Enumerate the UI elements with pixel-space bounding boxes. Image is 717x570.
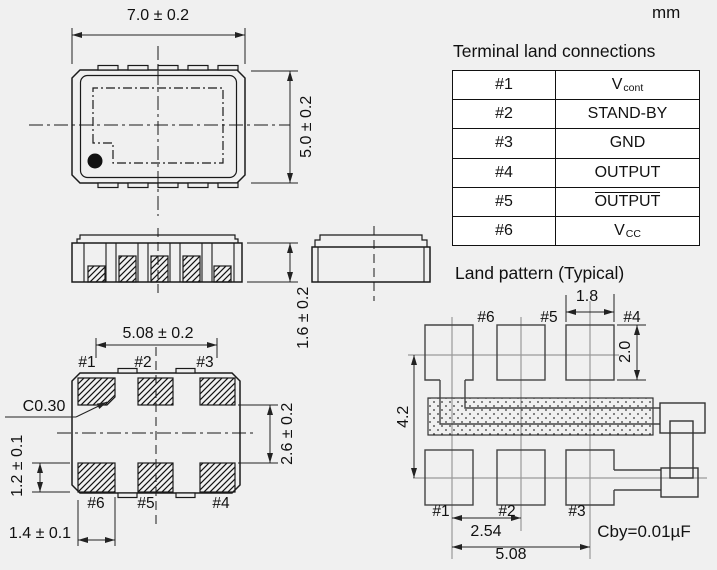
terminal-table-title: Terminal land connections	[453, 42, 655, 61]
signal-cell: VCC	[556, 217, 699, 245]
signal-cell: Vcont	[556, 71, 699, 99]
table-row: #6VCC	[453, 217, 699, 245]
table-row: #3GND	[453, 129, 699, 158]
bottom-view-pad-label-4: #4	[204, 495, 238, 512]
bottom-view-pad-label-2: #2	[126, 354, 160, 371]
front-view-dimensions	[247, 243, 298, 282]
bottom-view-pad-label-1: #1	[70, 354, 104, 371]
bottom-view-row-gap-dim: 2.6 ± 0.2	[279, 374, 297, 494]
top-view-width-dim: 7.0 ± 0.2	[98, 7, 218, 25]
bottom-view-pad-height-dim: 1.2 ± 0.1	[9, 406, 27, 526]
bottom-view-pad-label-3: #3	[188, 354, 222, 371]
signal-cell: OUTPUT	[556, 188, 699, 216]
front-view-drawing	[72, 228, 298, 294]
signal-cell: OUTPUT	[556, 159, 699, 187]
bypass-cap-note: Cby=0.01µF	[569, 523, 717, 542]
top-view-dimensions	[72, 28, 298, 183]
top-view-height-dim: 5.0 ± 0.2	[298, 67, 316, 187]
land-pattern-label-1: #1	[424, 503, 458, 520]
pin-cell: #5	[453, 188, 556, 216]
pad-1-chamfered	[78, 378, 115, 405]
bottom-view-pad-label-5: #5	[129, 495, 163, 512]
pin-cell: #1	[453, 71, 556, 99]
land-pattern-label-2: #2	[490, 503, 524, 520]
table-row: #5OUTPUT	[453, 188, 699, 217]
table-row: #4OUTPUT	[453, 159, 699, 188]
side-view-drawing	[312, 226, 430, 301]
table-row: #2STAND-BY	[453, 100, 699, 129]
pin-cell: #6	[453, 217, 556, 245]
pin-cell: #3	[453, 129, 556, 157]
land-pattern-title: Land pattern (Typical)	[455, 264, 624, 283]
top-view-castellation-tabs	[98, 66, 238, 188]
bottom-view-pad-label-6: #6	[79, 495, 113, 512]
land-pattern-pad-height-dim: 2.0	[617, 292, 635, 412]
bypass-capacitor-footprint	[660, 403, 705, 497]
land-pattern-label-3: #3	[560, 503, 594, 520]
bottom-view-pad-width-dim: 1.4 ± 0.1	[0, 525, 100, 543]
top-view-drawing	[29, 28, 298, 216]
signal-cell: GND	[556, 129, 699, 157]
datasheet-package-drawing: mm 7.0 ± 0.2 5.0 ± 0.2 1.6 ± 0.2 5.08 ± …	[0, 0, 717, 570]
land-pattern-pitch-dim: 2.54	[426, 523, 546, 541]
land-pattern-label-5: #5	[532, 309, 566, 326]
pin1-index-dot	[88, 154, 103, 169]
front-view-thickness-dim: 1.6 ± 0.2	[295, 258, 313, 378]
bottom-view-span-dim: 5.08 ± 0.2	[98, 325, 218, 343]
land-pattern-span-dim: 5.08	[451, 546, 571, 564]
land-pattern-row-pitch-dim: 4.2	[395, 357, 413, 477]
table-row: #1Vcont	[453, 71, 699, 100]
unit-label: mm	[652, 4, 696, 23]
terminal-land-connections-table: #1Vcont #2STAND-BY #3GND #4OUTPUT #5OUTP…	[452, 70, 700, 246]
pin-cell: #4	[453, 159, 556, 187]
signal-cell: STAND-BY	[556, 100, 699, 128]
land-pattern-label-6: #6	[469, 309, 503, 326]
pin-cell: #2	[453, 100, 556, 128]
front-view-pads	[88, 256, 231, 282]
